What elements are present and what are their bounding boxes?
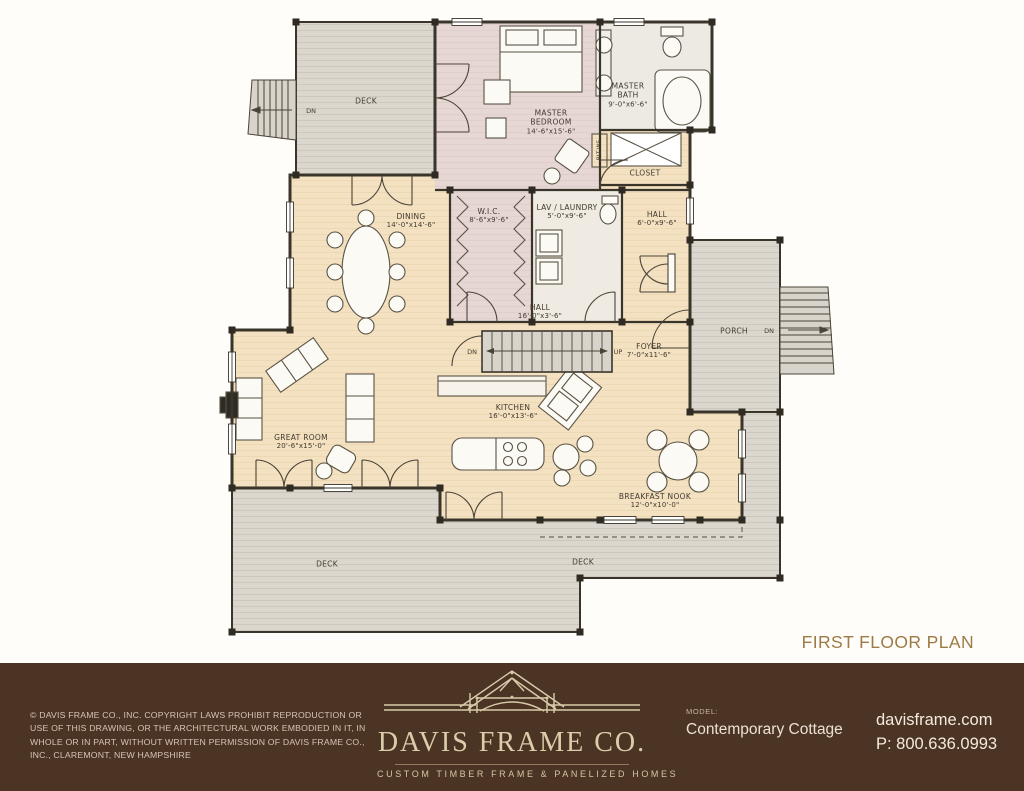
room-label-deck-top: DECK	[355, 96, 377, 105]
phone-text: P: 800.636.0993	[876, 733, 997, 757]
model-name: Contemporary Cottage	[686, 721, 843, 739]
room-label-foyer: FOYER 7'-0"x11'-6"	[627, 342, 671, 360]
model-label: MODEL:	[686, 707, 843, 716]
room-label-breakfast-nook: BREAKFAST NOOK 12'-0"x10'-0"	[619, 492, 691, 510]
room-label-closet: CLOSET	[630, 168, 661, 177]
room-label-great-room: GREAT ROOM 20'-6"x15'-0"	[274, 433, 328, 451]
logo-divider	[395, 764, 629, 765]
stair-label-up-main: UP	[614, 348, 623, 356]
stair-label-dn-deck: DN	[306, 107, 316, 115]
room-label-built-ins: BLT-INS	[597, 140, 604, 160]
page-title: FIRST FLOOR PLAN	[802, 632, 974, 653]
timber-truss-icon	[382, 667, 642, 715]
room-label-kitchen: KITCHEN 16'-0"x13'-6"	[489, 403, 538, 421]
room-label-lav-laundry: LAV / LAUNDRY 5'-0"x9'-6"	[537, 203, 598, 221]
website-text: davisframe.com	[876, 709, 997, 733]
model-info: MODEL: Contemporary Cottage	[686, 707, 843, 739]
logo-name: DAVIS FRAME CO.	[377, 727, 647, 759]
logo-tagline: CUSTOM TIMBER FRAME & PANELIZED HOMES	[377, 769, 647, 779]
first-floor-plan: DECK DN MASTER BEDROOM 14'-6"x15'-6" MAS…	[0, 0, 1024, 663]
room-label-porch: PORCH	[720, 326, 748, 335]
room-label-hall-upper: HALL 6'-0"x9'-6"	[637, 210, 677, 228]
room-label-master-bath: MASTER BATH 9'-0"x6'-6"	[604, 81, 652, 109]
copyright-text: © DAVIS FRAME CO., INC. COPYRIGHT LAWS P…	[30, 709, 375, 763]
room-label-hall-lower: HALL 16'-0"x3'-6"	[518, 303, 562, 321]
main-stairs	[482, 331, 612, 372]
room-label-deck-bottom-left: DECK	[316, 559, 338, 568]
room-label-master-bedroom: MASTER BEDROOM 14'-6"x15'-6"	[516, 108, 586, 136]
room-label-dining: DINING 14'-0"x14'-6"	[387, 212, 436, 230]
davis-frame-logo: DAVIS FRAME CO. CUSTOM TIMBER FRAME & PA…	[377, 667, 647, 779]
stair-label-dn-porch: DN	[764, 327, 774, 335]
brochure-page: DECK DN MASTER BEDROOM 14'-6"x15'-6" MAS…	[0, 0, 1024, 791]
footer-bar: © DAVIS FRAME CO., INC. COPYRIGHT LAWS P…	[0, 663, 1024, 791]
floor-plan-drawing	[0, 0, 1024, 663]
contact-info: davisframe.com P: 800.636.0993	[876, 709, 997, 757]
room-label-wic: W.I.C. 8'-6"x9'-6"	[469, 207, 509, 225]
stair-label-dn-main: DN	[467, 348, 477, 356]
room-label-deck-bottom-right: DECK	[572, 557, 594, 566]
